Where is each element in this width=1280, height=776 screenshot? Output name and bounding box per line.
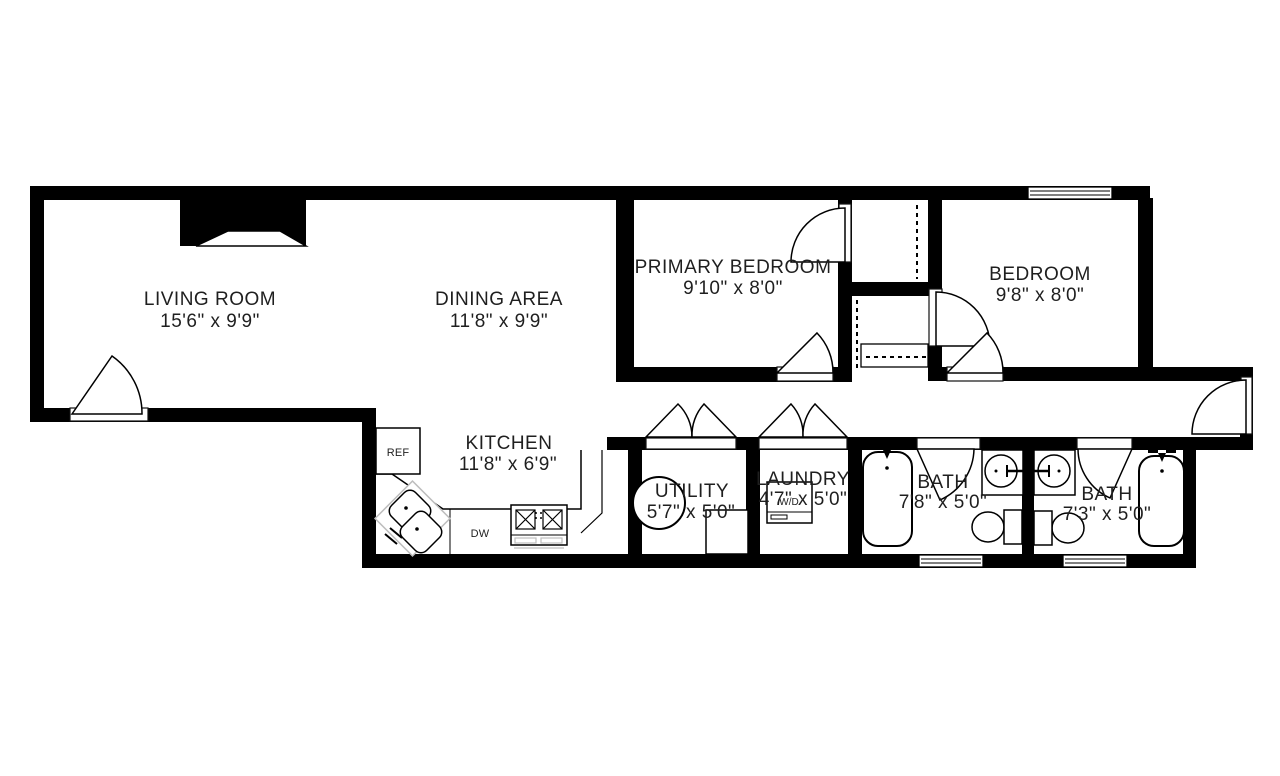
room-label-utility: UTILITY bbox=[655, 481, 729, 502]
room-label-bath-1: BATH bbox=[917, 472, 968, 493]
room-label-bath-2: BATH bbox=[1081, 484, 1132, 505]
room-dims-dining-area: 11'8" x 9'9" bbox=[450, 311, 548, 332]
door-arc-laundry-left bbox=[759, 404, 803, 437]
door-arc-laundry-right bbox=[803, 404, 847, 437]
door-sill-laundry bbox=[759, 438, 847, 449]
sink-drain-1 bbox=[404, 506, 408, 510]
wall-top bbox=[30, 186, 1150, 200]
kitchen-counter-return bbox=[581, 450, 602, 533]
room-dims-primary-bedroom: 9'10" x 8'0" bbox=[683, 278, 783, 299]
floor-plan-canvas: REF DW bbox=[0, 0, 1280, 776]
wall-bedroom-left-upper bbox=[928, 198, 942, 290]
room-label-primary-bedroom: PRIMARY BEDROOM bbox=[635, 257, 832, 278]
dishwasher-label: DW bbox=[471, 528, 490, 540]
room-label-dining-area: DINING AREA bbox=[435, 289, 563, 310]
window-bath1 bbox=[919, 555, 983, 567]
wall-laundry-bath-divider bbox=[848, 450, 862, 554]
door-arc-entry bbox=[1192, 380, 1246, 434]
floor-plan-drawing: REF DW bbox=[0, 0, 1280, 776]
room-dims-bath-2: 7'3" x 5'0" bbox=[1063, 504, 1152, 525]
vanity-sink-2 bbox=[1032, 450, 1075, 495]
wall-bath-bath-divider bbox=[1022, 450, 1034, 554]
refrigerator-label: REF bbox=[387, 447, 410, 459]
wall-left bbox=[30, 186, 44, 422]
door-arc-primary-entry bbox=[777, 333, 833, 373]
toilet-1 bbox=[972, 510, 1022, 544]
door-gap-bath1 bbox=[917, 438, 980, 449]
wall-dining-primary-divider bbox=[616, 198, 634, 382]
room-label-living-room: LIVING ROOM bbox=[144, 289, 276, 310]
room-label-laundry: LAUNDRY bbox=[756, 469, 850, 490]
wall-bedroom-right bbox=[1138, 198, 1153, 381]
wall-kitchen-left bbox=[362, 408, 376, 568]
sink-drain-2 bbox=[415, 527, 419, 531]
closet-shelf bbox=[861, 344, 928, 367]
door-sill-utility bbox=[646, 438, 736, 449]
wall-closet-divider bbox=[838, 282, 940, 296]
room-dims-utility: 5'7" x 5'0" bbox=[647, 502, 736, 523]
door-arc-utility-left bbox=[646, 404, 692, 437]
room-label-kitchen: KITCHEN bbox=[466, 433, 553, 454]
room-dims-living-room: 15'6" x 9'9" bbox=[160, 311, 260, 332]
door-arc-primary-closet bbox=[791, 208, 845, 262]
door-gap-bath2 bbox=[1077, 438, 1132, 449]
room-dims-laundry: 4'7" x 5'0" bbox=[759, 489, 848, 510]
window-bath2 bbox=[1063, 555, 1127, 567]
vanity-sink-1 bbox=[982, 450, 1024, 495]
room-dims-kitchen: 11'8" x 6'9" bbox=[459, 454, 557, 475]
room-dims-bath-1: 7'8" x 5'0" bbox=[899, 492, 988, 513]
window-bedroom bbox=[1028, 187, 1112, 199]
bathtub-2 bbox=[1139, 447, 1184, 546]
room-label-bedroom: BEDROOM bbox=[989, 264, 1091, 285]
room-dims-bedroom: 9'8" x 8'0" bbox=[996, 285, 1085, 306]
door-arc-utility-right bbox=[692, 404, 736, 437]
kitchen-sink bbox=[375, 481, 450, 556]
stove bbox=[511, 505, 567, 548]
door-arc-living bbox=[72, 356, 142, 414]
